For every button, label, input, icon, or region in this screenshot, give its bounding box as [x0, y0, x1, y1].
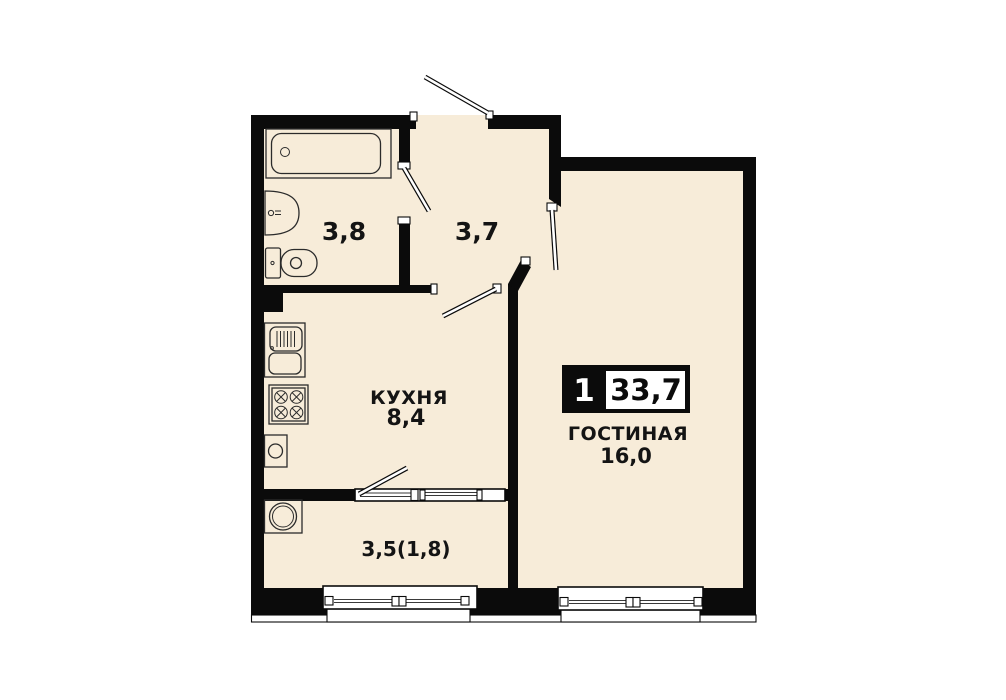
- bathroom-door-jamb: [398, 217, 410, 224]
- window-sill: [327, 609, 470, 622]
- living-door-hinge: [547, 203, 557, 211]
- badge-total-area: 33,7: [610, 373, 682, 407]
- hallway-area-label: 3,7: [455, 217, 499, 246]
- bathroom-area-label: 3,8: [322, 217, 366, 246]
- vent-shaft-block: [264, 293, 283, 312]
- window-cap: [420, 490, 425, 500]
- balcony-door-cap: [411, 490, 418, 501]
- wall-bathroom-kitchen: [251, 285, 437, 293]
- wall-living-top: [558, 157, 756, 171]
- window-cap: [461, 597, 469, 606]
- window-cap: [325, 597, 333, 606]
- kitchen-door-jamb: [431, 284, 437, 294]
- floor-plan-canvas: 1 33,7 3,8 3,7 КУХНЯ 8,4 ГОСТИНАЯ 16,0 3…: [0, 0, 1006, 700]
- wall-left: [251, 115, 264, 617]
- badge-room-count: 1: [573, 373, 595, 409]
- window-cap: [399, 597, 406, 607]
- wall-right: [743, 157, 756, 617]
- wall-bathroom-upper: [399, 129, 410, 164]
- living-room-area-label: 16,0: [600, 444, 652, 468]
- entrance-jamb: [410, 112, 417, 121]
- apartment-summary-badge: 1 33,7: [562, 365, 690, 413]
- window-cap: [694, 598, 702, 607]
- window-cap: [392, 597, 399, 607]
- wall-top-left: [251, 115, 416, 129]
- bathroom-door-jamb: [398, 162, 410, 169]
- window-sill: [561, 610, 700, 622]
- balcony-window: [323, 586, 477, 622]
- balcony-area-label: 3,5(1,8): [361, 537, 450, 561]
- floor-plan-svg: 1 33,7 3,8 3,7 КУХНЯ 8,4 ГОСТИНАЯ 16,0 3…: [0, 0, 1006, 700]
- living-door-jamb: [521, 257, 530, 265]
- window-cap: [633, 598, 640, 608]
- living-room-name-label: ГОСТИНАЯ: [568, 423, 688, 445]
- window-cap: [560, 598, 568, 607]
- wall-kitchen-living: [508, 284, 518, 588]
- window-cap: [477, 490, 482, 500]
- entrance-door-leaf: [425, 77, 488, 113]
- kitchen-area-label: 8,4: [387, 406, 426, 431]
- wall-kitchen-balcony-left: [264, 489, 355, 501]
- living-room-window: [558, 587, 703, 622]
- window-cap: [626, 598, 633, 608]
- wall-bathroom-lower: [399, 222, 410, 286]
- entrance-door: [410, 77, 493, 121]
